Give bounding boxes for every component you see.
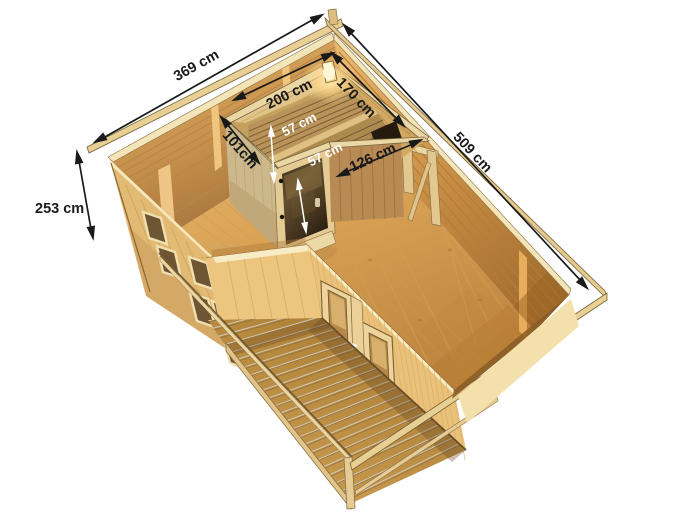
svg-text:253 cm: 253 cm	[35, 201, 84, 217]
